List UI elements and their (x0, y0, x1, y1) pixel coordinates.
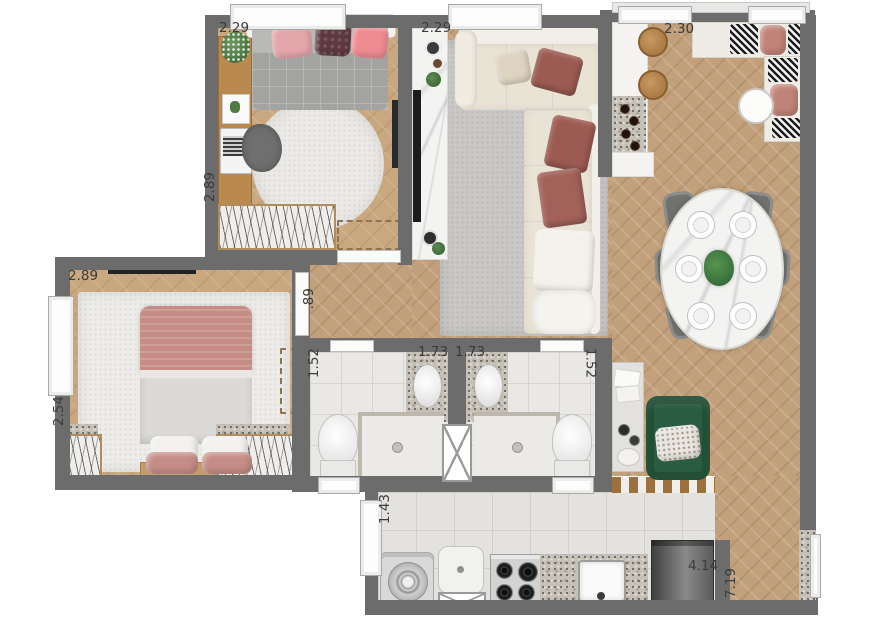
bar-counter-step (612, 152, 654, 177)
window (552, 477, 594, 494)
wall (365, 600, 730, 615)
bed2-pillow-rose (146, 452, 198, 474)
washing-machine-lid (388, 562, 428, 602)
sideboard-decor-plate (617, 448, 640, 466)
bathroom1-door (330, 340, 374, 352)
tank-drain (457, 566, 464, 573)
wall (398, 15, 412, 265)
side-table (738, 88, 774, 124)
coffee-set-item (618, 424, 630, 436)
console-decor-cup2 (431, 57, 444, 70)
bath1-toilet-tank (320, 460, 356, 477)
place-setting (687, 302, 715, 330)
wall (800, 15, 816, 532)
dimension-label-bedroom2-width: 2.89 (68, 270, 98, 284)
wine-bottle (630, 141, 640, 151)
bath1-drain (392, 442, 403, 453)
floor-plan: 2.29 2.89 2.29 2.30 2.89 2.54 .89 1.52 1… (0, 0, 871, 627)
wine-bottle (621, 129, 631, 139)
wall (55, 475, 310, 490)
wall (800, 598, 818, 615)
sofa-cushion-white (532, 228, 595, 293)
dimension-label-right-wing-depth: 7.19 (725, 568, 739, 598)
bed2-pillow-rose (202, 452, 252, 474)
bathroom2-door (540, 340, 584, 352)
ventilation-shaft (442, 424, 472, 482)
bed2-blanket (140, 306, 252, 374)
window (48, 296, 74, 396)
sofa-blanket (532, 290, 596, 334)
bath2-basin (474, 364, 503, 408)
wall (448, 352, 466, 426)
bedroom1-wardrobe (218, 204, 336, 250)
place-setting (729, 211, 757, 239)
bench-pillow-zigzag (788, 24, 800, 54)
wall (205, 15, 218, 265)
sofa-arm-left (455, 30, 477, 108)
bench-pillow-zigzag (730, 24, 758, 54)
dimension-label-living-width: 2.29 (421, 22, 451, 36)
dimension-label-service-depth: 1.43 (379, 494, 393, 524)
dimension-label-bath2-width: 1.73 (455, 346, 485, 360)
bench-pillow-rose (770, 84, 798, 116)
tv (413, 90, 421, 222)
place-setting (739, 255, 767, 283)
dimension-label-bedroom1-width: 2.29 (219, 22, 249, 36)
dimension-label-hall-width: .89 (303, 288, 317, 309)
stove-burner (518, 584, 535, 601)
bedroom1-door (337, 250, 401, 263)
console-plant2 (432, 242, 445, 255)
stove-burner (496, 584, 513, 601)
stove-burner (518, 562, 538, 582)
desk-chair (242, 124, 282, 172)
place-setting (675, 255, 703, 283)
dimension-label-bath1-depth: 1.52 (308, 348, 322, 378)
nightstand (216, 424, 290, 434)
dimension-label-bath1-width: 1.73 (418, 346, 448, 360)
wine-bottle (620, 104, 630, 114)
bench-pillow-zigzag (768, 58, 798, 82)
sofa-pillow-beige (493, 47, 532, 86)
bedroom1-door-swing (337, 220, 401, 250)
dimension-label-bedroom2-depth: 2.54 (53, 396, 67, 426)
armchair-pillow (654, 424, 701, 462)
window (748, 6, 806, 24)
bath2-drain (512, 442, 523, 453)
dimension-label-bedroom1-depth: 2.89 (204, 172, 218, 202)
bench-pillow-zigzag (772, 118, 800, 138)
bed1-blanket (252, 52, 388, 110)
place-setting (687, 211, 715, 239)
coffee-set-item (629, 435, 640, 446)
sideboard-decor-paper (615, 385, 641, 403)
window (318, 477, 360, 494)
dimension-label-kitchen-width: 4.14 (688, 560, 718, 574)
bar-stool (638, 70, 668, 100)
bath2-toilet-tank (554, 460, 590, 477)
bath2-toilet-bowl (552, 414, 592, 466)
bench-pillow-rose (760, 25, 786, 55)
kitchen-faucet (597, 592, 605, 600)
dimension-label-bath2-depth: 1.52 (583, 348, 597, 378)
dimension-label-gourmet-width: 2.30 (664, 23, 694, 37)
window (810, 534, 821, 598)
console-decor-cup (425, 40, 441, 56)
place-setting (729, 302, 757, 330)
bath1-basin (413, 364, 442, 408)
wine-bottle (629, 116, 639, 126)
console-plant (426, 72, 441, 87)
frame-plant-icon (230, 101, 240, 113)
window (448, 4, 542, 30)
sofa-pillow-burgundy3 (536, 167, 587, 229)
stove-burner (496, 562, 513, 579)
bed1-pillow-rose (351, 24, 390, 59)
table-centerpiece-plant (704, 250, 734, 286)
wall (598, 15, 612, 177)
bath1-toilet-bowl (318, 414, 358, 466)
